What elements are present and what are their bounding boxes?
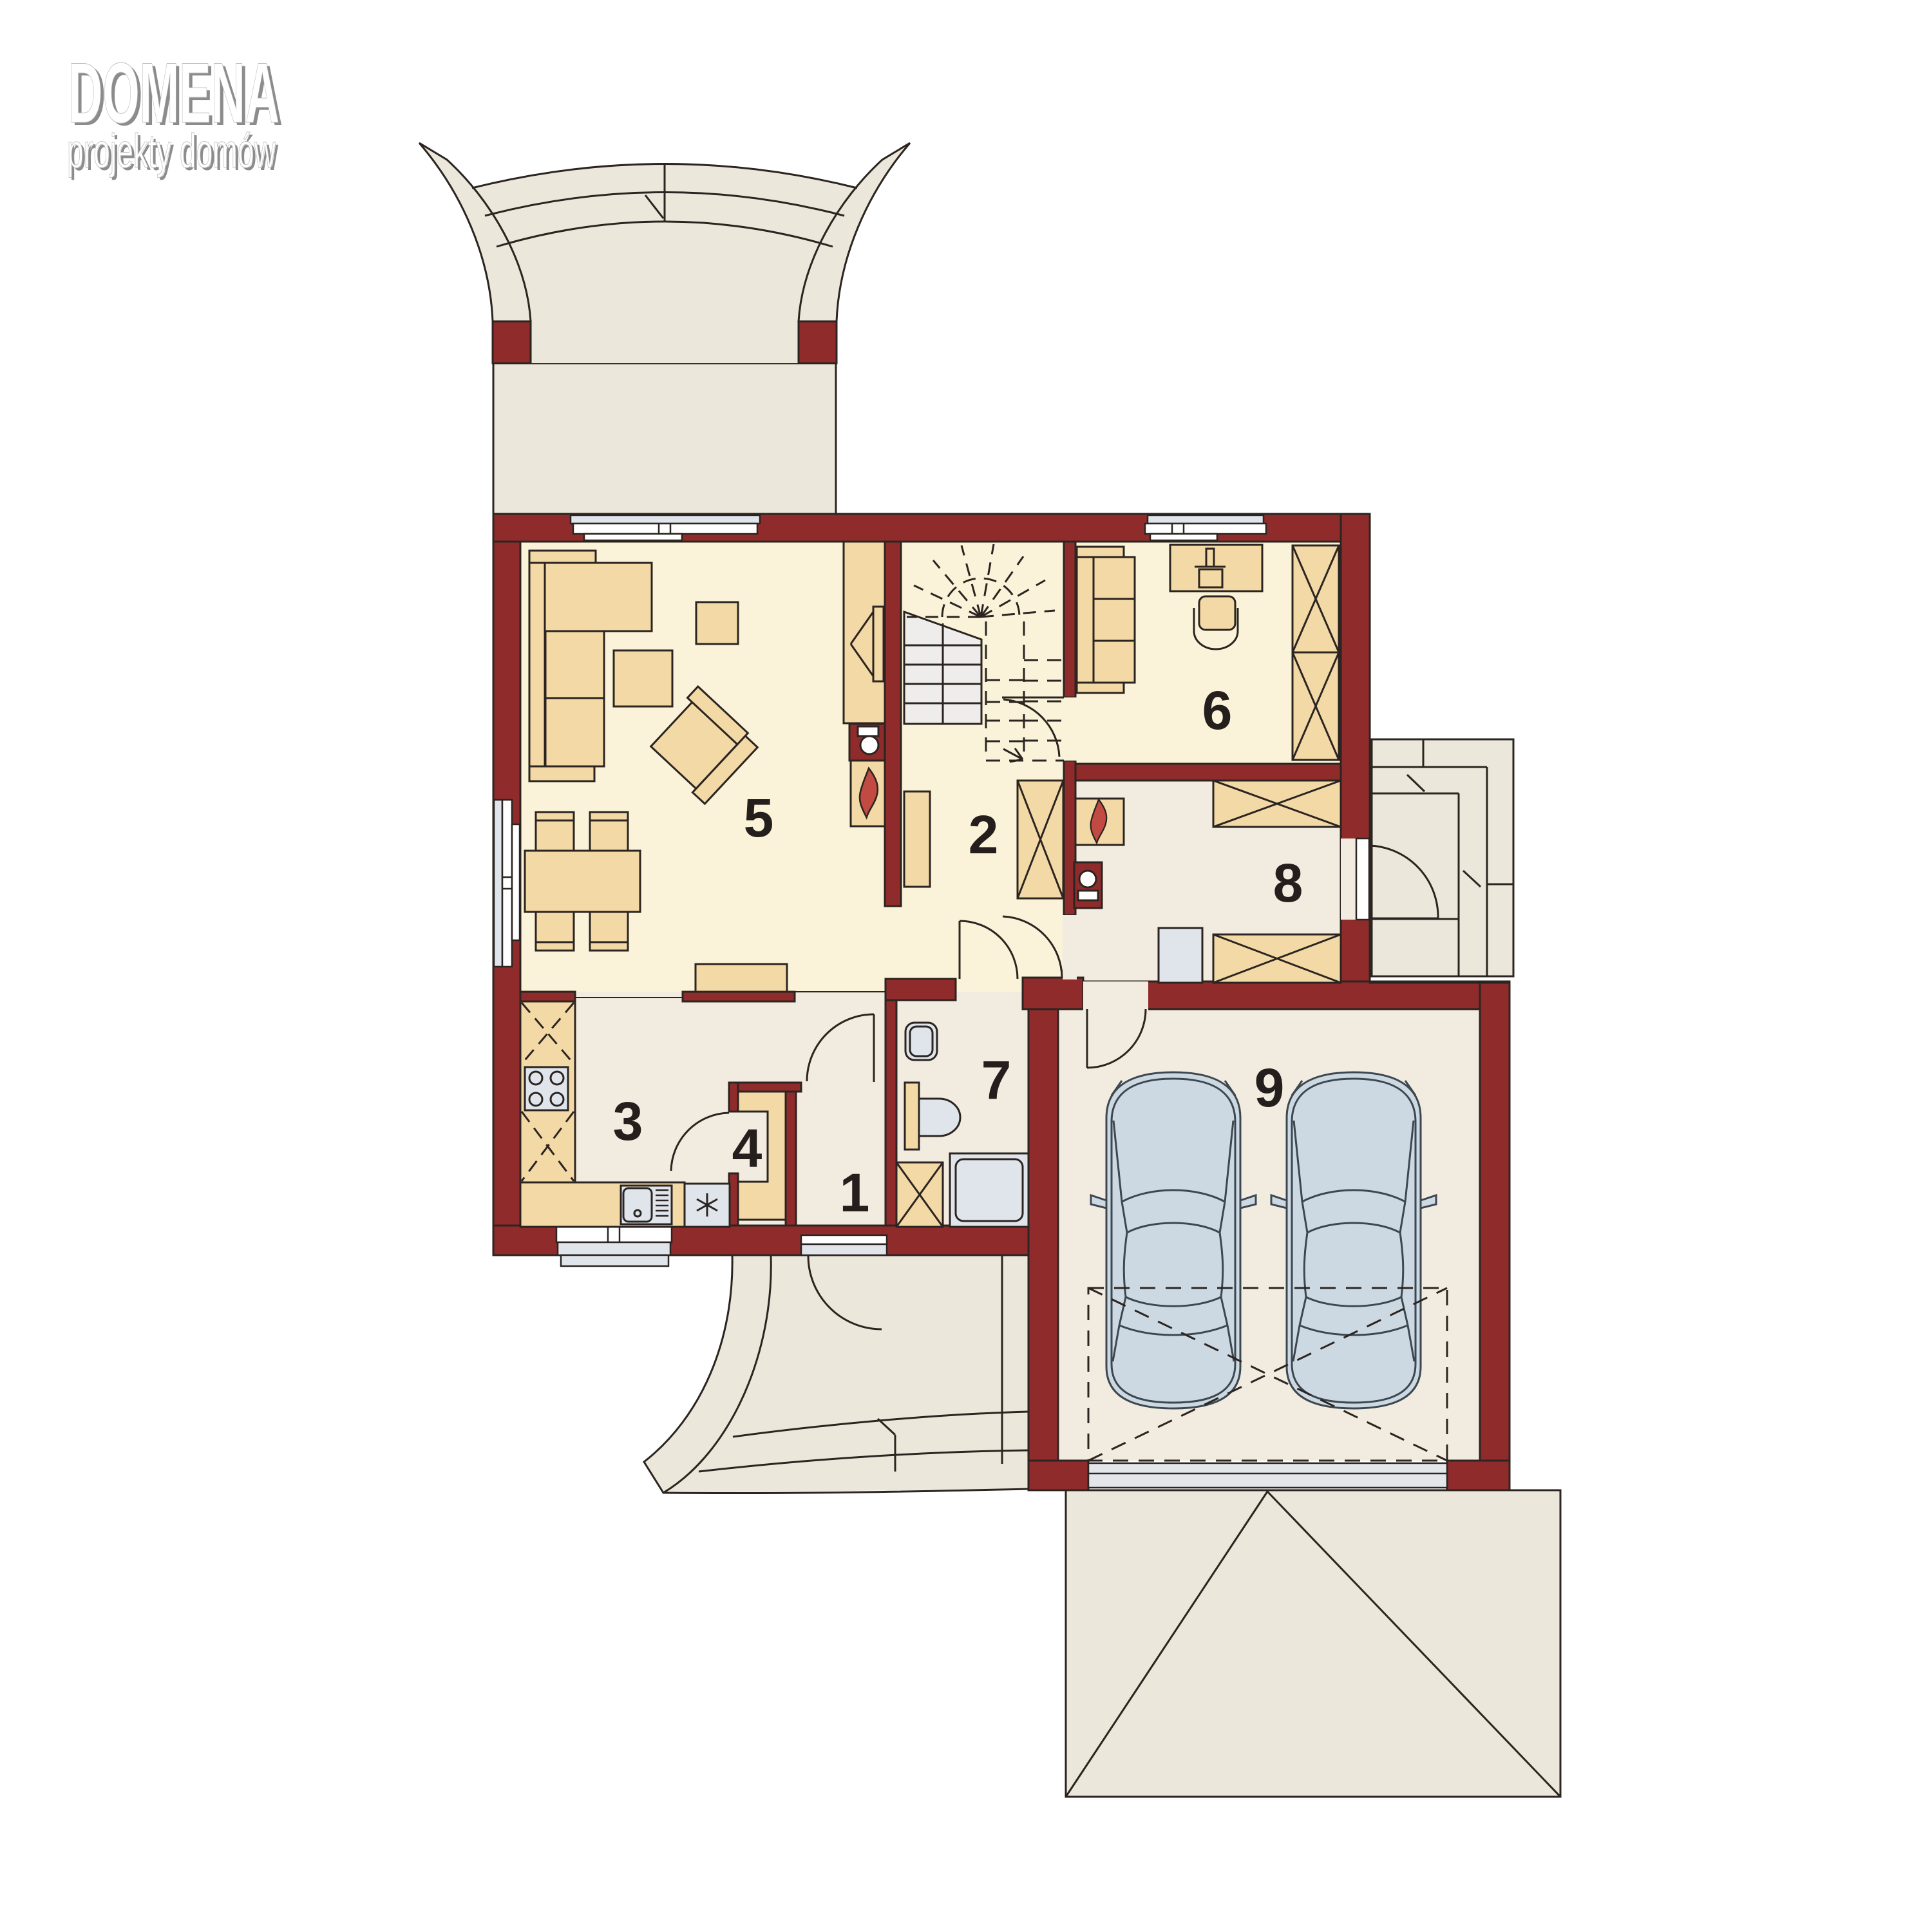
svg-text:7: 7 [981,1050,1012,1110]
svg-text:projekty domów: projekty domów [67,124,276,178]
svg-text:6: 6 [1202,680,1233,741]
svg-text:3: 3 [613,1091,643,1151]
svg-text:8: 8 [1273,853,1303,913]
svg-text:9: 9 [1255,1057,1285,1118]
svg-text:1: 1 [840,1162,870,1223]
svg-text:5: 5 [744,788,774,848]
svg-text:2: 2 [969,804,999,865]
svg-text:4: 4 [732,1118,762,1179]
